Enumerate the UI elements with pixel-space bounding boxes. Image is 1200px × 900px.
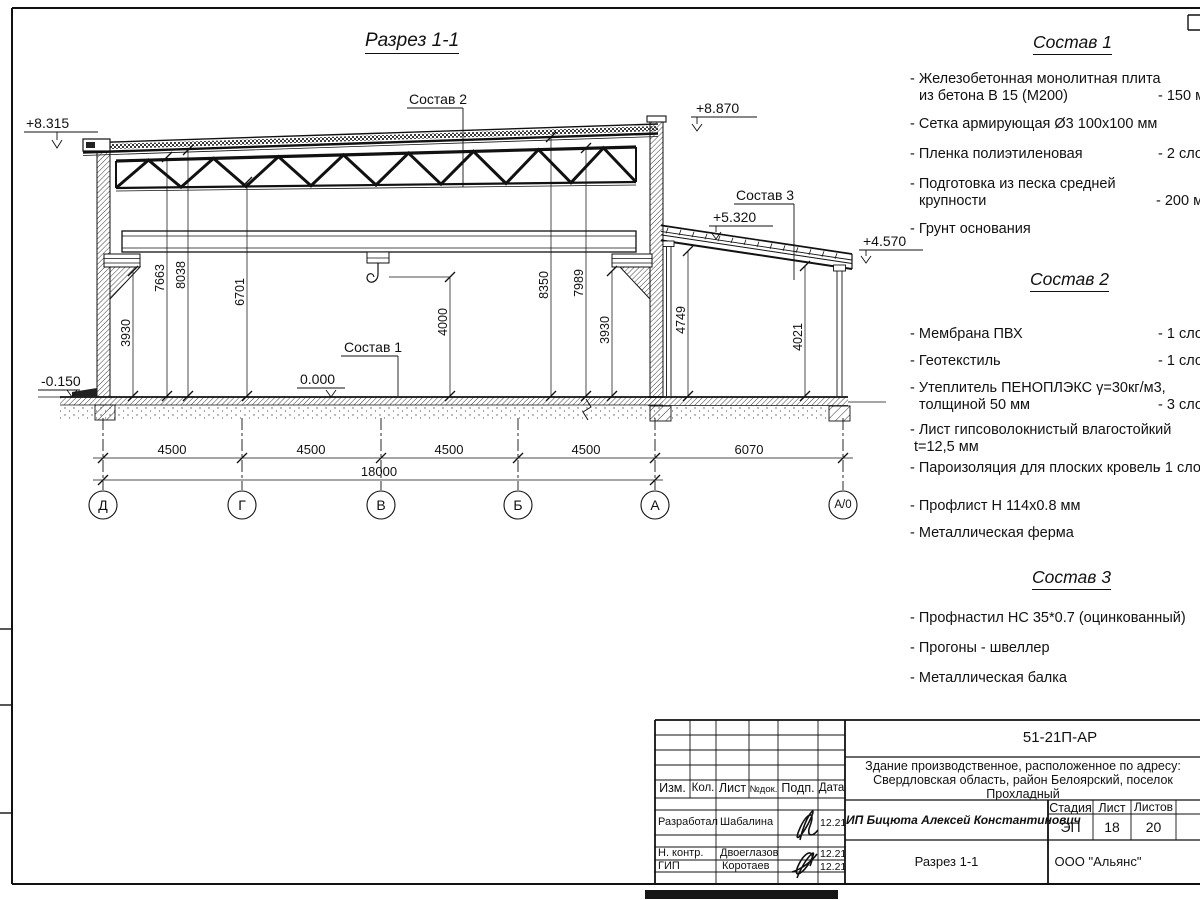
tb-drawing-name: Разрез 1-1 xyxy=(845,855,1048,870)
hdim-label: 6070 xyxy=(709,443,789,458)
tb-col-data: Дата xyxy=(818,782,845,795)
vdim-label: 4021 xyxy=(791,297,805,377)
tb-sheets-value: 20 xyxy=(1131,819,1176,835)
tb-stage-label: Стадия xyxy=(1048,801,1093,815)
tb-col-izm: Изм. xyxy=(655,781,690,795)
list-item: - Прогоны - швеллер xyxy=(910,640,1050,657)
list-item-value: - 1 слой xyxy=(1156,460,1200,477)
annex xyxy=(661,225,852,396)
list-item: - Профлист Н 114х0.8 мм xyxy=(910,498,1081,515)
tb-col-podp: Подп. xyxy=(778,781,818,795)
vdim-label: 3930 xyxy=(598,290,612,370)
axis-label: А xyxy=(640,497,670,513)
tb-person: ИП Бицюта Алексей Константинович xyxy=(846,814,1046,828)
drawing-title: Разрез 1-1 xyxy=(365,30,459,54)
scan-artifact-bar xyxy=(645,890,838,899)
bottom-dimensions xyxy=(89,418,857,519)
hdim-label: 4500 xyxy=(409,443,489,458)
tb-name: Коротаев xyxy=(722,860,770,873)
vdim-label: 4749 xyxy=(674,280,688,360)
list-heading-sostav2: Состав 2 xyxy=(1030,269,1109,292)
leader-label-sostav3: Состав 3 xyxy=(736,187,794,203)
list-item: - Грунт основания xyxy=(910,221,1031,238)
floor-and-ground xyxy=(38,388,886,421)
list-heading-sostav1: Состав 1 xyxy=(1033,32,1112,55)
vdim-label: 7663 xyxy=(153,238,167,318)
drawing-sheet: Разрез 1-1 +8.315 +8.870 +5.320 +4.570 0… xyxy=(0,0,1200,900)
elevation-mark: +4.570 xyxy=(863,233,906,249)
elevation-mark: +5.320 xyxy=(713,209,756,225)
list-item-value: - 150 мм xyxy=(1158,88,1200,105)
tb-date: 12.21 xyxy=(820,848,846,860)
list-item: из бетона В 15 (М200) xyxy=(919,88,1068,105)
list-item: - Железобетонная монолитная плита xyxy=(910,71,1161,88)
list-item: - Металлическая ферма xyxy=(910,525,1074,542)
vdim-label: 7989 xyxy=(572,243,586,323)
axis-label: А/0 xyxy=(828,499,858,512)
hdim-label: 4500 xyxy=(271,443,351,458)
vdim-label: 3930 xyxy=(119,293,133,373)
list-item: - Утеплитель ПЕНОПЛЭКС γ=30кг/м3, xyxy=(910,380,1166,397)
object-description: Здание производственное, расположенное п… xyxy=(848,759,1198,801)
tb-org: ООО "Альянс" xyxy=(1048,855,1148,870)
list-item-value: - 3 слоя xyxy=(1158,397,1200,414)
tb-role: ГИП xyxy=(658,860,680,873)
doc-code: 51-21П-АР xyxy=(880,729,1200,746)
tb-col-list: Лист xyxy=(716,781,749,795)
vdim-label: 8350 xyxy=(537,245,551,325)
tb-col-ndok: №док. xyxy=(749,785,778,796)
elevation-mark: +8.315 xyxy=(26,115,69,131)
list-item: крупности xyxy=(919,193,986,210)
list-item: - Профнастил НС 35*0.7 (оцинкованный) xyxy=(910,610,1186,627)
elevation-mark: +8.870 xyxy=(696,100,739,116)
axis-label: Б xyxy=(503,497,533,513)
list-item: - Подготовка из песка средней xyxy=(910,176,1116,193)
main-roof xyxy=(83,124,658,156)
list-item: - Металлическая балка xyxy=(910,670,1067,687)
list-item: толщиной 50 мм xyxy=(919,397,1030,414)
tb-sheet-label: Лист xyxy=(1093,801,1131,815)
elevation-mark: -0.150 xyxy=(41,373,81,389)
tb-date: 12.21 xyxy=(820,861,846,873)
axis-label: В xyxy=(366,497,396,513)
roof-truss xyxy=(116,147,636,191)
tb-sheet-value: 18 xyxy=(1093,819,1131,835)
elevation-mark: 0.000 xyxy=(300,371,335,387)
list-item-value: - 2 слоя xyxy=(1158,146,1200,163)
tb-sheets-label: Листов xyxy=(1131,801,1176,815)
list-item: - Пароизоляция для плоских кровель xyxy=(910,460,1160,477)
axis-label: Д xyxy=(88,497,118,513)
list-heading-sostav3: Состав 3 xyxy=(1032,567,1111,590)
axis-label: Г xyxy=(227,497,257,513)
list-item: - Мембрана ПВХ xyxy=(910,326,1023,343)
list-item-value: - 1 слой xyxy=(1158,326,1200,343)
list-item: - Геотекстиль xyxy=(910,353,1001,370)
hdim-label: 4500 xyxy=(132,443,212,458)
vdim-label: 4000 xyxy=(436,282,450,362)
signature-scribbles xyxy=(792,811,818,878)
axis-bubbles xyxy=(89,491,857,519)
leader-label-sostav1: Состав 1 xyxy=(344,339,402,355)
list-item: - Лист гипсоволокнистый влагостойкий xyxy=(910,422,1171,439)
tb-date: 12.21 xyxy=(820,817,846,829)
list-item-value: - 1 слой xyxy=(1158,353,1200,370)
tb-name: Шабалина xyxy=(720,816,773,829)
tb-role: Н. контр. xyxy=(658,847,703,860)
tb-role: Разработал xyxy=(658,816,718,829)
list-item-value: - 200 мм xyxy=(1156,193,1200,210)
tb-stage-value: ЭП xyxy=(1048,819,1093,835)
tb-col-kol: Кол. xyxy=(690,782,716,795)
list-item: t=12,5 мм xyxy=(914,439,979,456)
vdim-label: 6701 xyxy=(233,252,247,332)
tb-name: Двоеглазов xyxy=(720,847,778,860)
list-item: - Сетка армирующая Ø3 100х100 мм xyxy=(910,116,1157,133)
leader-label-sostav2: Состав 2 xyxy=(409,91,467,107)
vdim-label: 8038 xyxy=(174,235,188,315)
list-item: - Пленка полиэтиленовая xyxy=(910,146,1083,163)
hdim-total-label: 18000 xyxy=(339,465,419,480)
hdim-label: 4500 xyxy=(546,443,626,458)
